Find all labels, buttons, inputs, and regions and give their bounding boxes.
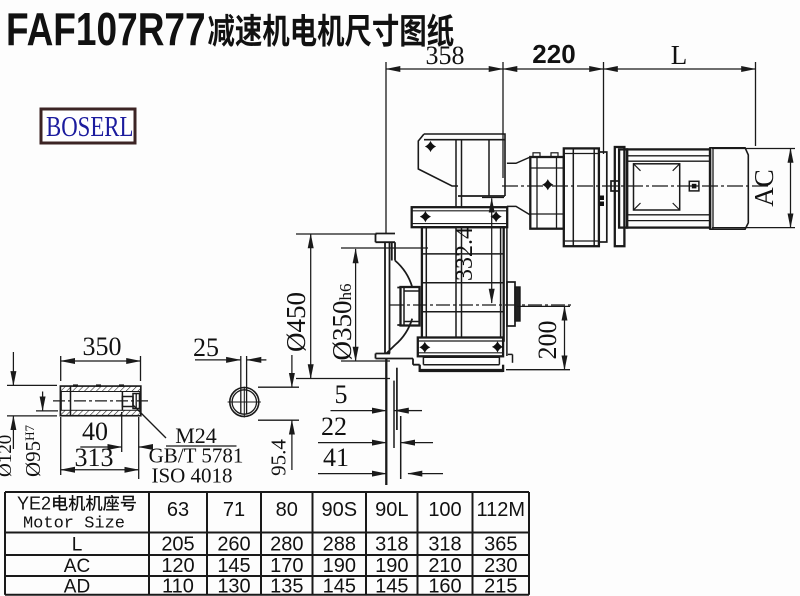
svg-text:200: 200 [533,321,562,360]
svg-text:AC: AC [64,556,90,577]
svg-text:110: 110 [162,576,194,596]
svg-text:190: 190 [323,555,356,577]
svg-text:40: 40 [82,417,108,446]
svg-text:145: 145 [217,555,250,577]
svg-text:25: 25 [193,333,219,362]
svg-text:90L: 90L [375,499,408,521]
svg-text:Ø120: Ø120 [0,435,16,477]
svg-text:260: 260 [217,534,250,556]
svg-text:215: 215 [484,576,517,596]
svg-text:L: L [72,535,83,556]
svg-text:210: 210 [428,555,461,577]
svg-text:332.4: 332.4 [452,227,478,281]
svg-text:365: 365 [484,534,517,556]
svg-text:170: 170 [270,555,303,577]
svg-text:130: 130 [217,576,250,596]
svg-text:AD: AD [64,577,90,596]
svg-text:120: 120 [161,555,194,577]
svg-text:358: 358 [426,41,465,70]
svg-text:FAF107R77: FAF107R77 [6,3,206,55]
svg-text:YE2: YE2 [17,494,51,514]
svg-text:22: 22 [321,412,347,441]
svg-text:350: 350 [83,332,122,361]
svg-text:BOSERL: BOSERL [46,111,133,143]
svg-text:318: 318 [375,534,408,556]
svg-text:100: 100 [428,499,461,521]
svg-text:135: 135 [270,576,303,596]
svg-text:5: 5 [335,380,348,409]
svg-text:112M: 112M [477,499,526,521]
svg-text:318: 318 [428,534,461,556]
svg-text:145: 145 [323,576,356,596]
svg-text:205: 205 [161,534,194,556]
svg-text:AC: AC [749,169,779,207]
svg-text:ISO 4018: ISO 4018 [151,464,232,488]
svg-text:288: 288 [323,534,356,556]
svg-text:90S: 90S [322,499,358,521]
svg-text:313: 313 [75,443,114,472]
svg-text:63: 63 [167,499,189,521]
svg-text:190: 190 [375,555,408,577]
svg-text:145: 145 [375,576,408,596]
svg-text:95.4: 95.4 [267,439,291,476]
svg-text:220: 220 [532,39,575,69]
svg-text:160: 160 [428,576,461,596]
svg-text:80: 80 [276,499,298,521]
svg-text:L: L [671,40,688,70]
svg-text:230: 230 [484,555,517,577]
svg-text:280: 280 [270,534,303,556]
svg-text:41: 41 [323,443,349,472]
svg-text:Ø450: Ø450 [281,292,311,352]
svg-text:71: 71 [223,499,245,521]
svg-text:Motor Size: Motor Size [23,515,125,534]
